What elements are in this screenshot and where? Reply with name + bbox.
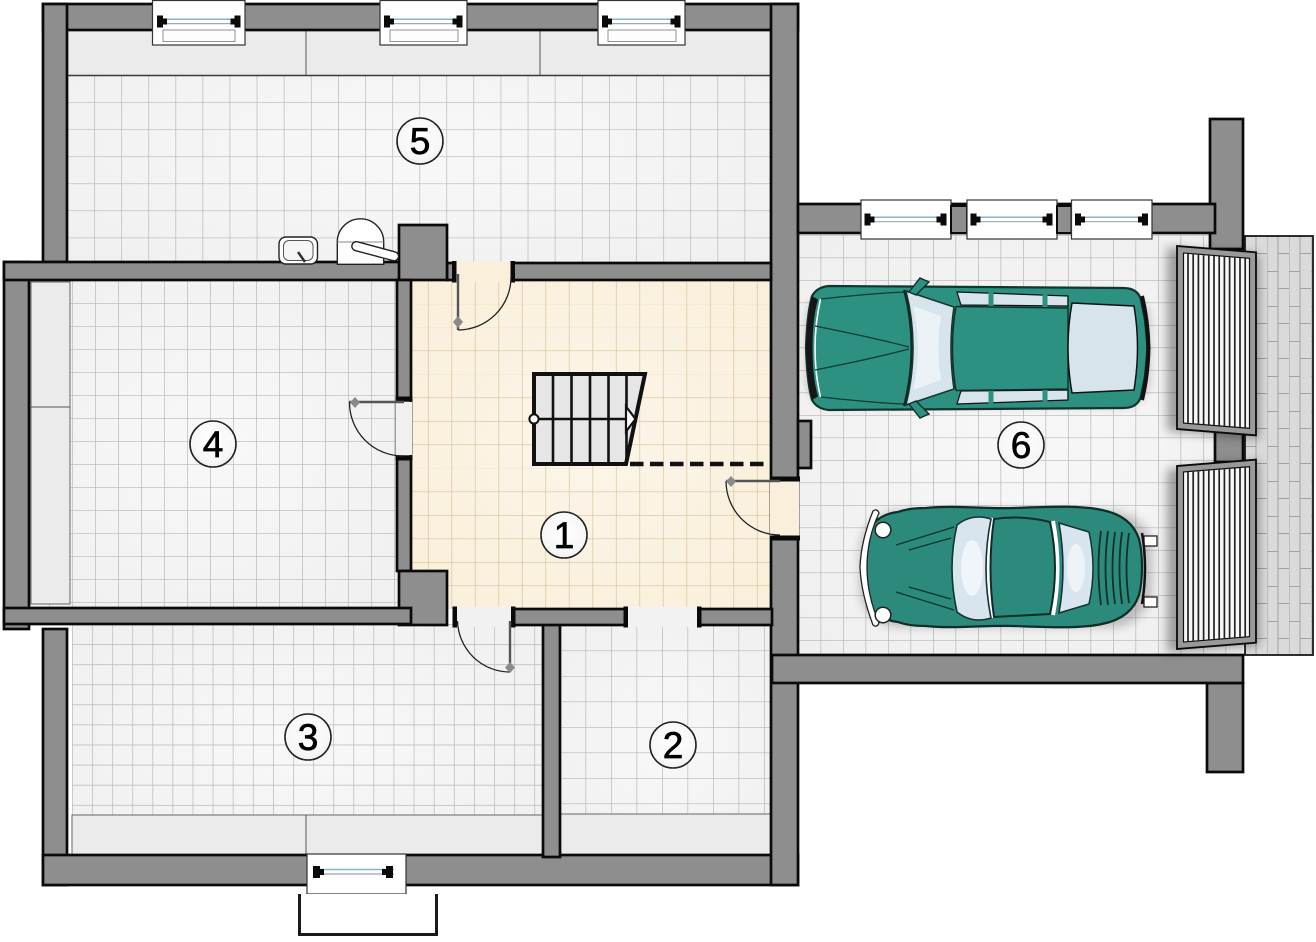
svg-text:5: 5 — [410, 121, 431, 162]
svg-text:4: 4 — [203, 424, 224, 465]
svg-text:2: 2 — [663, 725, 684, 766]
svg-text:1: 1 — [554, 515, 575, 556]
svg-text:3: 3 — [298, 717, 319, 758]
svg-text:6: 6 — [1011, 425, 1032, 466]
